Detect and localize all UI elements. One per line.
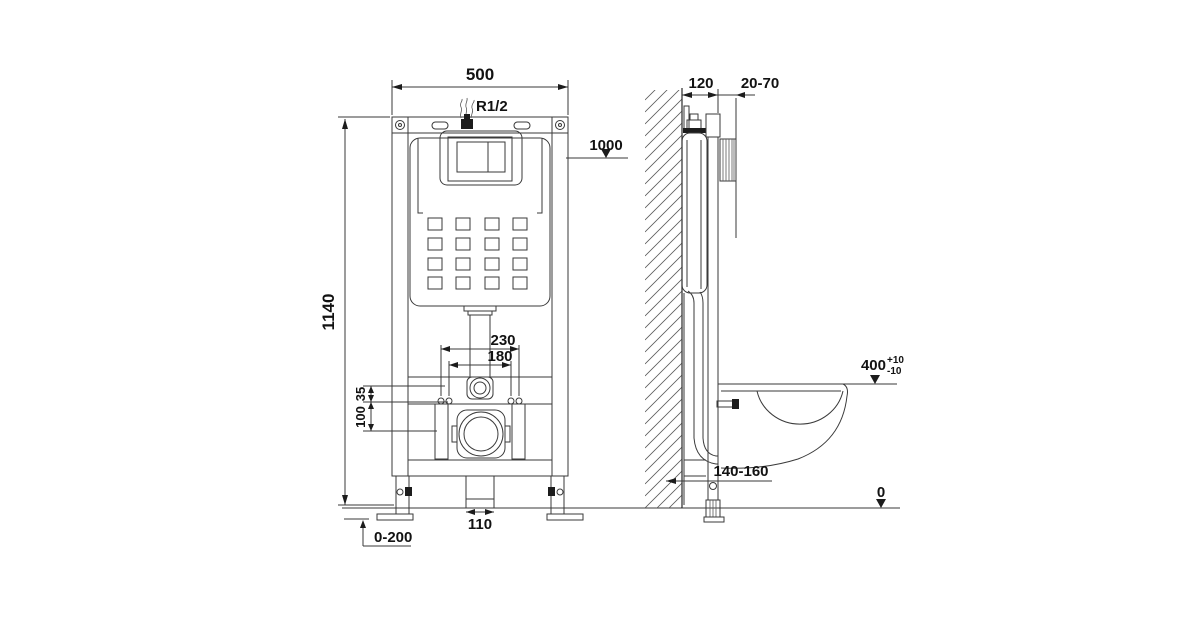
dim-bowl-height-label: 400	[861, 357, 886, 374]
dim-feet-adjustment-label: 0-200	[374, 529, 412, 546]
corner-screw-icon	[396, 121, 405, 130]
dim-frame-height-label: 1140	[319, 294, 338, 331]
technical-drawing-page: 500 R1/2 1000 1140 230	[0, 0, 1200, 630]
dim-floor-level: 0	[876, 484, 886, 508]
corner-screw-icon	[556, 121, 565, 130]
dim-vertical-offsets: 35 100	[353, 386, 448, 431]
dim-wall-finish-label: 20-70	[741, 75, 779, 92]
dim-bolt-outer-label: 230	[490, 332, 515, 349]
dim-outlet-width-label: 110	[468, 516, 492, 533]
water-supply-fitting	[460, 98, 474, 129]
foot-plate	[547, 514, 583, 520]
waste-outlet	[452, 410, 510, 458]
fixing-bolt-hole	[508, 398, 514, 404]
dim-bowl-height-tol-plus: +10	[887, 355, 904, 366]
wall-hatch	[645, 63, 682, 580]
wc-frame-installation-drawing: 500 R1/2 1000 1140 230	[0, 0, 1200, 630]
cistern	[410, 138, 550, 306]
dim-bolt-spacing: 230 180	[441, 332, 519, 396]
bowl-support-bar	[512, 404, 525, 459]
flush-plate-side	[720, 139, 736, 181]
vent-grid	[428, 218, 527, 289]
cistern-side-profile	[682, 106, 707, 293]
fixing-bolt-hole	[516, 398, 522, 404]
dim-outlet-width: 110	[466, 509, 494, 533]
fixing-bolt-hole	[438, 398, 444, 404]
frame-feet	[377, 476, 583, 520]
front-view: 500 R1/2 1000 1140 230	[319, 65, 628, 546]
dim-flush-level-label: 1000	[589, 137, 622, 154]
hanger-slot	[514, 122, 530, 129]
dim-frame-height: 1140	[319, 117, 394, 505]
outlet-pipe	[466, 476, 494, 508]
toilet-bowl-profile	[717, 384, 897, 468]
dim-frame-width-label: 500	[466, 65, 494, 84]
fixing-bolt-hole	[446, 398, 452, 404]
flush-plate	[440, 131, 522, 185]
dim-bowl-height-tol-minus: -10	[887, 366, 902, 377]
level-marker-icon	[870, 375, 880, 384]
dim-depth: 120 20-70	[682, 75, 779, 238]
dim-bolt-inner-label: 180	[487, 348, 512, 365]
bowl-fixing-stub	[717, 401, 733, 407]
dim-water-supply-label: R1/2	[476, 98, 508, 115]
hanger-slot	[432, 122, 448, 129]
foot-plate	[377, 514, 413, 520]
dim-feet-adjustment: 0-200	[344, 519, 412, 546]
frame-foot-side	[704, 476, 724, 522]
dim-frame-depth-label: 120	[688, 75, 713, 92]
cross-members	[408, 377, 552, 476]
dim-waste-height-label: 140-160	[713, 463, 768, 480]
side-view: 120 20-70 400 +10 -10 140-160 0	[645, 63, 904, 580]
dim-floor-level-label: 0	[877, 484, 885, 501]
dim-flush-level: 1000	[566, 137, 628, 158]
dim-offset-100-label: 100	[353, 406, 368, 428]
dim-bowl-height: 400 +10 -10	[861, 355, 904, 384]
water-flow-icon	[460, 99, 462, 118]
dim-offset-35-label: 35	[353, 387, 368, 401]
frame-rail-side	[706, 114, 736, 476]
